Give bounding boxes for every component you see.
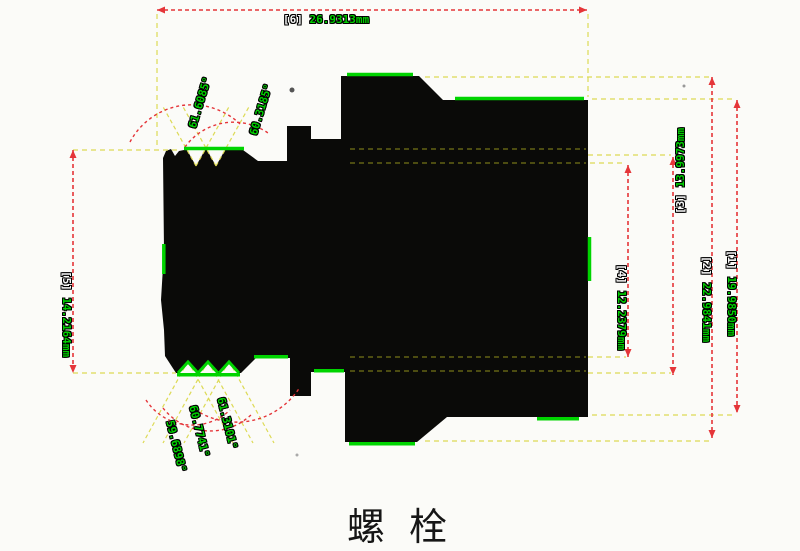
inspection-drawing: [0, 0, 800, 550]
dim-label-1: [1] 19.9850mm: [725, 250, 738, 336]
dim-value-5: 14.2164mm: [60, 298, 73, 358]
dim-ref-3: [3]: [674, 194, 687, 214]
dim-label-4: [4] 12.2379mm: [615, 264, 628, 350]
dim-value-4: 12.2379mm: [615, 291, 628, 351]
part-title: 螺 栓: [0, 496, 800, 551]
dim-label-6: [6] 26.9313mm: [283, 13, 369, 26]
dim-ref-1: [1]: [725, 250, 738, 270]
measurement-viewport: [6] 26.9313mm [5] 14.2164mm [4] 12.2379m…: [0, 0, 800, 550]
dim-ref-4: [4]: [615, 264, 628, 284]
dim-label-2: [2] 22.9841mm: [700, 256, 713, 342]
dim-label-3: [3] 13.9973mm: [674, 128, 687, 214]
bolt-silhouette: [161, 76, 588, 442]
dim-label-5: [5] 14.2164mm: [60, 271, 73, 357]
dim-ref-2: [2]: [700, 256, 713, 276]
dim-value-1: 19.9850mm: [725, 277, 738, 337]
dim-value-2: 22.9841mm: [700, 283, 713, 343]
dim-value-3: 13.9973mm: [674, 128, 687, 188]
dim-ref-6: [6]: [283, 13, 303, 26]
dim-ref-5: [5]: [60, 271, 73, 291]
dim-value-6: 26.9313mm: [310, 13, 370, 26]
